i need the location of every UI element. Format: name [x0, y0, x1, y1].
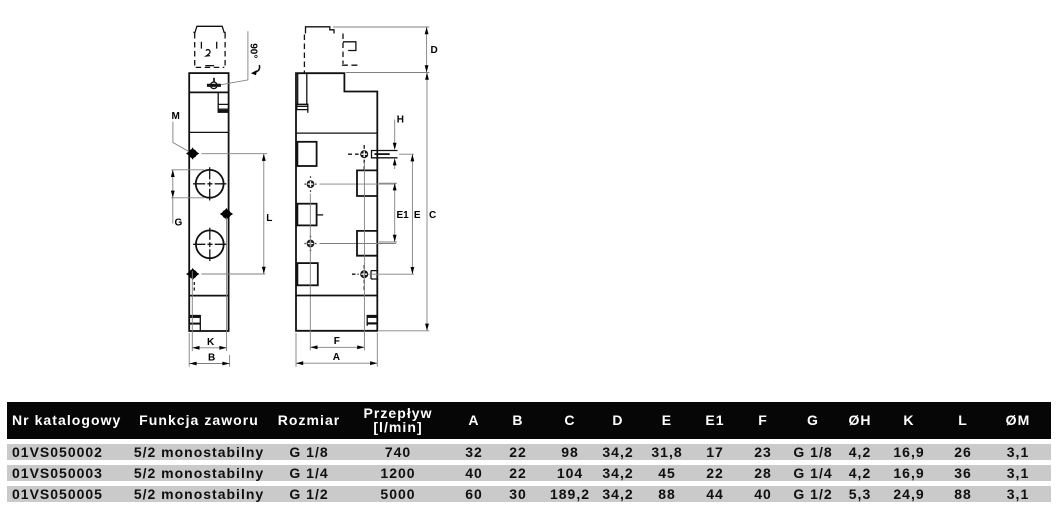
svg-text:E1: E1: [397, 210, 410, 221]
svg-text:A: A: [333, 352, 340, 363]
svg-text:F: F: [334, 336, 340, 347]
svg-text:K: K: [207, 337, 215, 348]
svg-text:G: G: [175, 218, 183, 229]
svg-text:B: B: [208, 352, 215, 363]
svg-text:L: L: [266, 213, 272, 224]
svg-text:E: E: [414, 210, 421, 221]
svg-text:H: H: [397, 115, 404, 126]
svg-text:90°: 90°: [248, 43, 259, 58]
svg-text:C: C: [429, 210, 436, 221]
svg-text:M: M: [172, 111, 180, 122]
svg-text:D: D: [431, 45, 438, 56]
